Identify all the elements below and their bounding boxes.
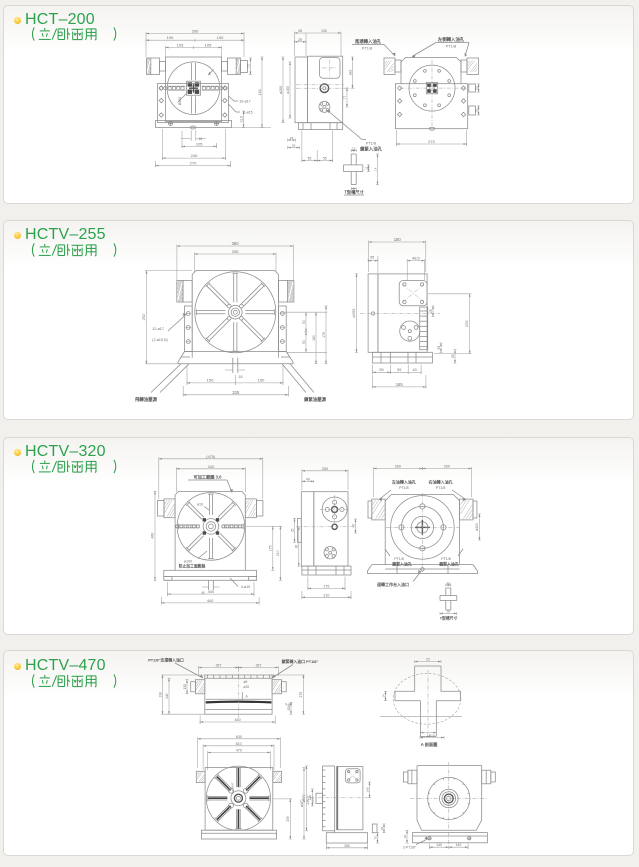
- svg-text:25: 25: [429, 309, 433, 313]
- svg-text:25: 25: [298, 38, 302, 42]
- svg-text:267: 267: [256, 664, 262, 668]
- svg-text:40: 40: [201, 591, 205, 595]
- svg-text:ø255: ø255: [351, 308, 356, 318]
- svg-text:14: 14: [373, 167, 377, 171]
- svg-text:250: 250: [322, 467, 328, 471]
- svg-text:175: 175: [323, 584, 329, 588]
- svg-text:75: 75: [373, 836, 377, 840]
- svg-text:ø320: ø320: [475, 523, 479, 531]
- svg-text:140: 140: [436, 843, 442, 847]
- svg-text:460: 460: [151, 533, 155, 539]
- svg-text:12: 12: [352, 147, 356, 151]
- svg-text:Ø200: Ø200: [178, 97, 182, 106]
- svg-text:260: 260: [192, 29, 199, 34]
- svg-text:360: 360: [232, 241, 240, 246]
- svg-text:35: 35: [370, 256, 374, 260]
- svg-text:馬達轉入油孔: 馬達轉入油孔: [355, 38, 382, 45]
- svg-text:ø35H7: ø35H7: [231, 782, 235, 791]
- svg-text:165: 165: [396, 382, 404, 387]
- svg-text:55: 55: [379, 368, 383, 372]
- svg-text:48.5: 48.5: [412, 257, 419, 261]
- svg-text:12: 12: [364, 166, 368, 170]
- svg-text:77: 77: [343, 96, 347, 100]
- svg-text:190: 190: [167, 35, 174, 40]
- svg-text:50: 50: [302, 320, 306, 324]
- svg-text:150: 150: [207, 378, 214, 383]
- svg-text:140: 140: [365, 787, 369, 792]
- svg-text:ø100: ø100: [184, 560, 192, 564]
- svg-text:18: 18: [199, 137, 203, 141]
- svg-text:160: 160: [312, 335, 316, 341]
- svg-text:50: 50: [302, 340, 306, 344]
- svg-text:31.5: 31.5: [239, 116, 243, 123]
- svg-text:T型槽尺寸: T型槽尺寸: [344, 189, 364, 196]
- svg-text:PT1/8"支撐轉入油口: PT1/8"支撐轉入油口: [148, 658, 184, 663]
- svg-text:55: 55: [397, 368, 401, 372]
- svg-text:PT1/8: PT1/8: [436, 486, 446, 490]
- svg-text:90: 90: [295, 545, 299, 549]
- svg-text:105: 105: [196, 141, 203, 146]
- svg-text:右油轉入油孔: 右油轉入油孔: [428, 479, 453, 485]
- svg-text:72: 72: [246, 64, 250, 68]
- svg-text:35: 35: [292, 144, 296, 148]
- svg-text:35: 35: [403, 835, 407, 839]
- svg-text:190: 190: [158, 692, 162, 698]
- svg-text:40: 40: [306, 477, 310, 481]
- svg-text:175: 175: [269, 545, 273, 551]
- svg-text:235: 235: [286, 816, 290, 822]
- svg-text:105: 105: [177, 43, 184, 48]
- svg-text:240: 240: [191, 153, 198, 158]
- svg-text:340: 340: [208, 465, 214, 469]
- svg-text:540: 540: [235, 718, 241, 722]
- svg-text:PT1/8: PT1/8: [394, 557, 404, 561]
- svg-text:4-ø19: 4-ø19: [241, 585, 250, 589]
- svg-text:2-PT1/8": 2-PT1/8": [403, 845, 417, 849]
- svg-text:ø35: ø35: [308, 795, 312, 801]
- svg-text:267: 267: [216, 664, 222, 668]
- svg-text:260: 260: [395, 465, 401, 469]
- svg-text:175: 175: [322, 332, 326, 338]
- svg-text:PT1/8: PT1/8: [399, 486, 409, 490]
- svg-text:(2-ø15 N): (2-ø15 N): [152, 338, 167, 342]
- svg-text:255: 255: [232, 249, 239, 254]
- svg-text:ø470: ø470: [302, 794, 306, 802]
- svg-text:45: 45: [298, 29, 302, 33]
- svg-text:PT1/8: PT1/8: [366, 142, 376, 146]
- svg-text:130: 130: [183, 684, 187, 690]
- svg-text:52: 52: [474, 86, 478, 90]
- svg-text:18: 18: [239, 375, 243, 379]
- svg-text:9-ø3: 9-ø3: [285, 703, 292, 707]
- svg-text:140: 140: [456, 843, 462, 847]
- svg-text:270: 270: [428, 139, 435, 144]
- svg-text:12-ø17: 12-ø17: [152, 327, 164, 331]
- svg-text:鎖緊入油孔: 鎖緊入油孔: [392, 561, 412, 566]
- svg-text:210: 210: [323, 593, 329, 597]
- svg-text:55: 55: [323, 157, 327, 161]
- svg-text:180: 180: [394, 237, 402, 242]
- svg-text:A: A: [246, 695, 249, 699]
- svg-text:260: 260: [444, 465, 450, 469]
- svg-text:510: 510: [236, 742, 242, 746]
- svg-text:470: 470: [236, 749, 242, 753]
- svg-text:25: 25: [437, 346, 441, 350]
- svg-text:PT1/8: PT1/8: [446, 45, 456, 49]
- svg-text:10-ø17: 10-ø17: [239, 100, 250, 104]
- svg-text:鎖緊轉入油口 PT1/8": 鎖緊轉入油口 PT1/8": [282, 659, 319, 664]
- svg-text:630: 630: [236, 735, 242, 739]
- svg-text:440: 440: [207, 599, 213, 603]
- svg-text:鎖緊油壓源: 鎖緊油壓源: [304, 396, 327, 403]
- svg-text:190: 190: [217, 35, 224, 40]
- svg-text:14: 14: [381, 694, 385, 698]
- svg-text:40: 40: [412, 368, 416, 372]
- svg-text:325: 325: [232, 390, 240, 395]
- svg-text:左側轉入油孔: 左側轉入油孔: [437, 36, 465, 43]
- svg-text:55: 55: [308, 157, 312, 161]
- svg-text:25: 25: [380, 826, 384, 830]
- svg-text:可加工範圍 3.0: 可加工範圍 3.0: [194, 474, 223, 481]
- svg-text:PT1/8: PT1/8: [441, 557, 451, 561]
- svg-text:40: 40: [351, 524, 355, 528]
- svg-text:ø160: ø160: [286, 86, 290, 94]
- svg-text:迴轉工作台入油口: 迴轉工作台入油口: [376, 581, 409, 587]
- svg-text:(5.5): (5.5): [429, 734, 435, 738]
- svg-text:A 剖面圖: A 剖面圖: [421, 741, 438, 748]
- svg-text:20: 20: [447, 610, 451, 614]
- svg-text:T型槽尺寸: T型槽尺寸: [440, 616, 458, 621]
- svg-text:12: 12: [447, 581, 451, 585]
- svg-text:130: 130: [321, 29, 327, 33]
- svg-text:(475): (475): [206, 455, 216, 459]
- svg-text:52: 52: [474, 109, 478, 113]
- svg-text:鎖緊入油孔: 鎖緊入油孔: [360, 146, 383, 153]
- svg-text:275: 275: [299, 692, 303, 698]
- svg-text:140: 140: [165, 693, 169, 699]
- svg-text:ø19: ø19: [197, 503, 203, 507]
- svg-text:25: 25: [290, 528, 294, 532]
- svg-text:15: 15: [290, 136, 294, 140]
- svg-text:260: 260: [344, 844, 350, 848]
- svg-text:163: 163: [258, 89, 262, 95]
- svg-text:鎖緊入油孔: 鎖緊入油孔: [439, 561, 459, 566]
- svg-text:150: 150: [258, 378, 265, 383]
- svg-text:25: 25: [451, 354, 455, 358]
- svg-text:左油轉入油孔: 左油轉入油孔: [391, 479, 416, 485]
- svg-text:ø9: ø9: [244, 680, 248, 684]
- svg-text:400: 400: [208, 590, 214, 594]
- svg-text:ø200: ø200: [279, 86, 283, 94]
- svg-text:PT1/8: PT1/8: [362, 47, 372, 51]
- svg-text:210: 210: [276, 550, 280, 556]
- svg-text:防止加工面膨脹: 防止加工面膨脹: [179, 564, 206, 569]
- svg-text:ø15: ø15: [244, 685, 250, 689]
- svg-text:270: 270: [190, 161, 197, 166]
- svg-text:292: 292: [141, 313, 146, 320]
- svg-text:飛轉油壓源: 飛轉油壓源: [134, 396, 158, 403]
- svg-text:ø82: ø82: [348, 69, 352, 75]
- svg-text:225: 225: [464, 320, 469, 327]
- svg-text:105: 105: [205, 43, 212, 48]
- svg-text:22: 22: [426, 658, 430, 662]
